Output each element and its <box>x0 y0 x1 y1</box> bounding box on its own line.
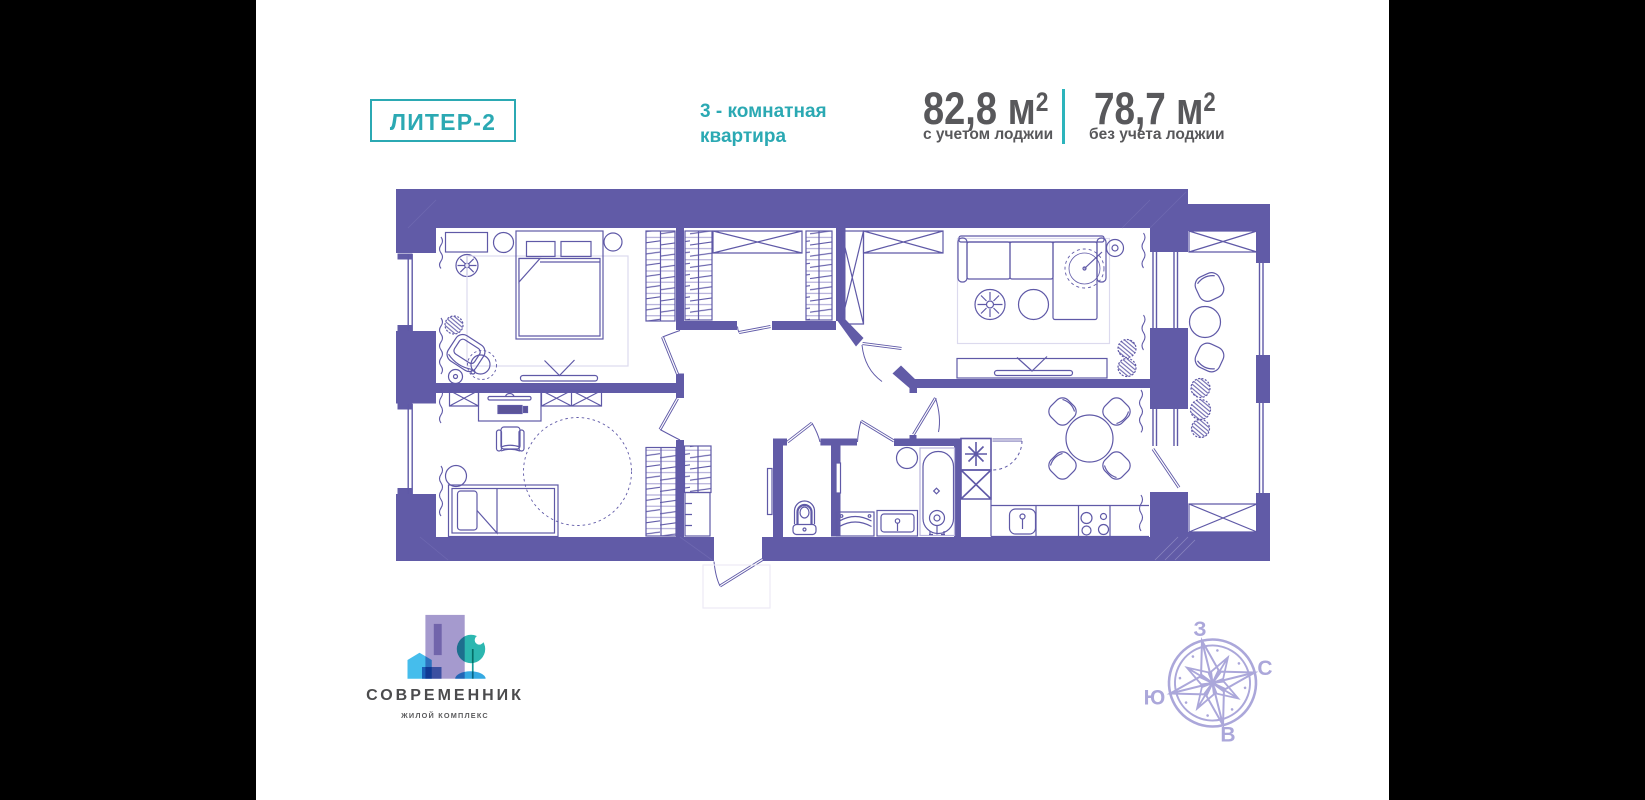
svg-text:С: С <box>1257 657 1272 680</box>
svg-text:В: В <box>1220 724 1235 747</box>
svg-text:З: З <box>1193 618 1206 641</box>
svg-text:Ю: Ю <box>1144 687 1166 710</box>
